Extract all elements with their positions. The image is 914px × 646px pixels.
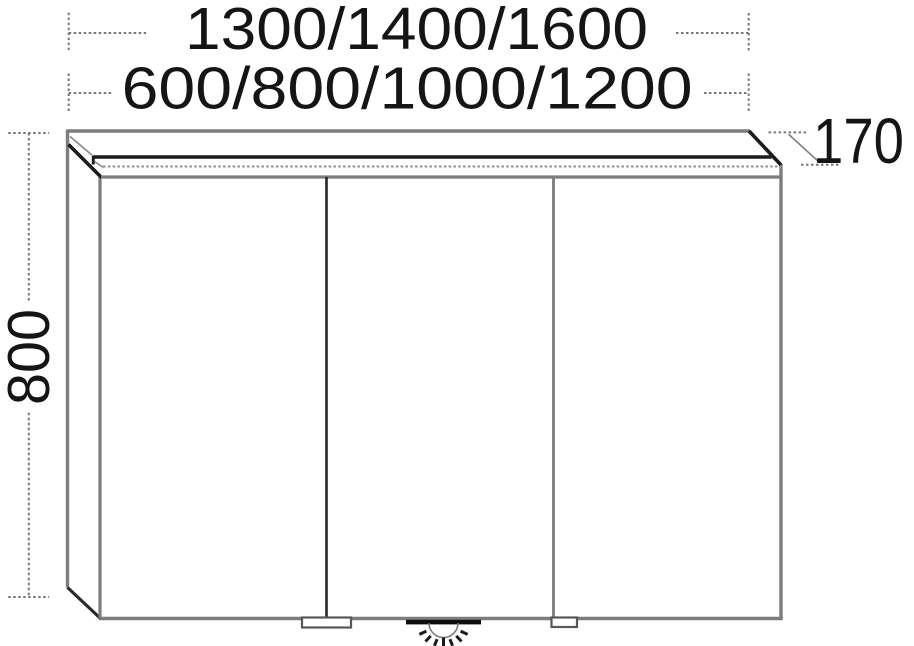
svg-text:170: 170: [813, 105, 904, 177]
svg-text:800: 800: [0, 309, 62, 405]
svg-text:600/800/1000/1200: 600/800/1000/1200: [122, 56, 693, 122]
svg-text:1300/1400/1600: 1300/1400/1600: [185, 0, 648, 62]
